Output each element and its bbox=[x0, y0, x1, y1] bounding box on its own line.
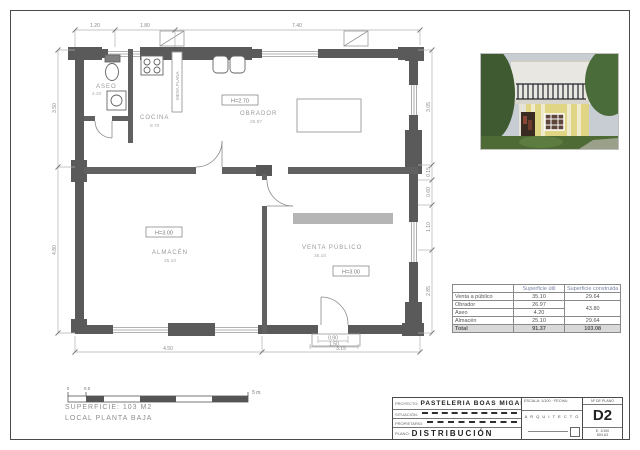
cell-built: 29.64 bbox=[565, 293, 621, 301]
plano-value: DISTRIBUCIÓN bbox=[412, 429, 494, 438]
lattice-window bbox=[545, 114, 564, 130]
cell-label: Aseo bbox=[453, 309, 514, 317]
cell-label: Total bbox=[453, 325, 514, 333]
dim-right-4: 1.10 bbox=[426, 222, 432, 232]
dim-right-3: 0.60 bbox=[426, 187, 432, 197]
area-almacen: 25.10 bbox=[164, 258, 176, 264]
proyecto-row: PROYECTO: PASTELERIA BOAS MIGAS bbox=[393, 398, 521, 410]
room-label-almacen: ALMACÉN bbox=[152, 249, 188, 256]
counter-label: MESA PLANA bbox=[175, 71, 180, 100]
propietario-row: PROPIETARIO: bbox=[393, 419, 521, 428]
room-label-aseo: ASEO bbox=[96, 84, 117, 90]
scale-end: 5 m. bbox=[252, 390, 262, 396]
area-aseo: 4.20 bbox=[92, 91, 102, 97]
areas-table: Superficie útil Superficie construida Ve… bbox=[452, 284, 621, 333]
cell-util: 4.20 bbox=[514, 309, 565, 317]
header-built: Superficie construida bbox=[565, 285, 621, 293]
room-label-cocina: COCINA bbox=[140, 115, 169, 121]
obrador-table bbox=[297, 99, 361, 132]
propietario-label: PROPIETARIO: bbox=[395, 421, 423, 426]
balcony-slab bbox=[514, 100, 589, 104]
double-sink bbox=[213, 56, 228, 73]
table-row: Almacén 25.10 29.64 bbox=[453, 317, 621, 325]
cell-util: 25.10 bbox=[514, 317, 565, 325]
local-note: LOCAL PLANTA BAJA bbox=[65, 415, 152, 422]
dim-top-3: 7.40 bbox=[292, 23, 302, 29]
propietario-dashes bbox=[427, 421, 517, 423]
dim-top-2: 1.80 bbox=[140, 23, 150, 29]
toilet-tank bbox=[105, 55, 120, 62]
situacion-label: SITUACIÓN: bbox=[395, 412, 418, 417]
dim-left-1: 3.50 bbox=[52, 103, 58, 113]
cell-label: Obrador bbox=[453, 301, 514, 309]
num-plano-label: Nº DE PLANO bbox=[583, 398, 622, 405]
shop-counter bbox=[293, 213, 393, 224]
proyecto-label: PROYECTO: bbox=[395, 401, 419, 406]
stamp-box bbox=[570, 427, 580, 437]
arquitecto-label: A R Q U I T E C T O bbox=[525, 414, 580, 419]
arquitecto-box: A R Q U I T E C T O bbox=[522, 411, 582, 439]
house-photo bbox=[480, 53, 619, 150]
plano-label: PLANO: bbox=[395, 431, 410, 436]
num-sub2: DIN A3 bbox=[583, 433, 622, 438]
cell-util: 35.10 bbox=[514, 293, 565, 301]
stove bbox=[141, 56, 163, 75]
cell-built: 29.64 bbox=[565, 317, 621, 325]
title-block-main: PROYECTO: PASTELERIA BOAS MIGAS SITUACIÓ… bbox=[393, 398, 522, 439]
dim-right-2: 0.15 bbox=[426, 167, 432, 177]
scale-bar: 0 0.5 5 m. bbox=[67, 386, 262, 402]
toilet-bowl bbox=[106, 64, 119, 81]
title-block-number: Nº DE PLANO D2 E: 1/100 DIN A3 bbox=[583, 398, 622, 439]
area-venta: 35.10 bbox=[314, 253, 326, 259]
cell-util: 26.97 bbox=[514, 301, 565, 309]
superficie-note: SUPERFICIE: 103 M2 bbox=[65, 404, 152, 411]
cell-built-merged: 43.80 bbox=[565, 301, 621, 317]
cell-label: Venta a público bbox=[453, 293, 514, 301]
num-plano-footer: E: 1/100 DIN A3 bbox=[583, 427, 622, 439]
cell-util: 91.37 bbox=[514, 325, 565, 333]
num-plano-value: D2 bbox=[583, 405, 622, 427]
height-obrador: H=2.70 bbox=[231, 99, 249, 105]
height-almacen: H=3.00 bbox=[155, 231, 173, 237]
table-header-row: Superficie útil Superficie construida bbox=[453, 285, 621, 293]
scale-zero: 0 bbox=[67, 386, 70, 391]
situacion-dashes bbox=[422, 412, 517, 414]
dim-right-1: 3.05 bbox=[426, 102, 432, 112]
signature-line bbox=[528, 431, 568, 432]
dim-right-5: 2.85 bbox=[426, 286, 432, 296]
header-empty bbox=[453, 285, 514, 293]
header-util: Superficie útil bbox=[514, 285, 565, 293]
house-photo-graphic bbox=[481, 54, 618, 149]
table-total-row: Total 91.37 103.08 bbox=[453, 325, 621, 333]
cell-built: 103.08 bbox=[565, 325, 621, 333]
room-label-venta: VENTA PÚBLICO bbox=[302, 244, 362, 251]
cell-label: Almacén bbox=[453, 317, 514, 325]
proyecto-value: PASTELERIA BOAS MIGAS bbox=[421, 400, 522, 407]
dim-top-1: 1.20 bbox=[90, 23, 100, 29]
interior-walls bbox=[84, 49, 418, 334]
situacion-row: SITUACIÓN: bbox=[393, 410, 521, 419]
room-label-obrador: OBRADOR bbox=[240, 111, 277, 117]
table-row: Obrador 26.97 43.80 bbox=[453, 301, 621, 309]
table-row: Venta a público 35.10 29.64 bbox=[453, 293, 621, 301]
title-block: PROYECTO: PASTELERIA BOAS MIGAS SITUACIÓ… bbox=[392, 397, 623, 440]
window-symbols bbox=[160, 31, 368, 46]
title-block-mid: ESCALA: 1/100 · FECHA: A R Q U I T E C T… bbox=[522, 398, 583, 439]
scale-half: 0.5 bbox=[84, 386, 91, 391]
escala-fecha: ESCALA: 1/100 · FECHA: bbox=[522, 398, 582, 411]
plano-row: PLANO: DISTRIBUCIÓN bbox=[393, 428, 521, 439]
area-cocina: 8.70 bbox=[150, 123, 160, 129]
exterior-walls bbox=[68, 47, 424, 336]
dim-left-2: 4.80 bbox=[52, 245, 58, 255]
dim-door-2: 1.50 bbox=[329, 342, 339, 348]
dim-bottom-1: 4.50 bbox=[163, 346, 173, 352]
height-venta: H=3.00 bbox=[342, 270, 360, 276]
area-obrador: 26.97 bbox=[250, 119, 262, 125]
